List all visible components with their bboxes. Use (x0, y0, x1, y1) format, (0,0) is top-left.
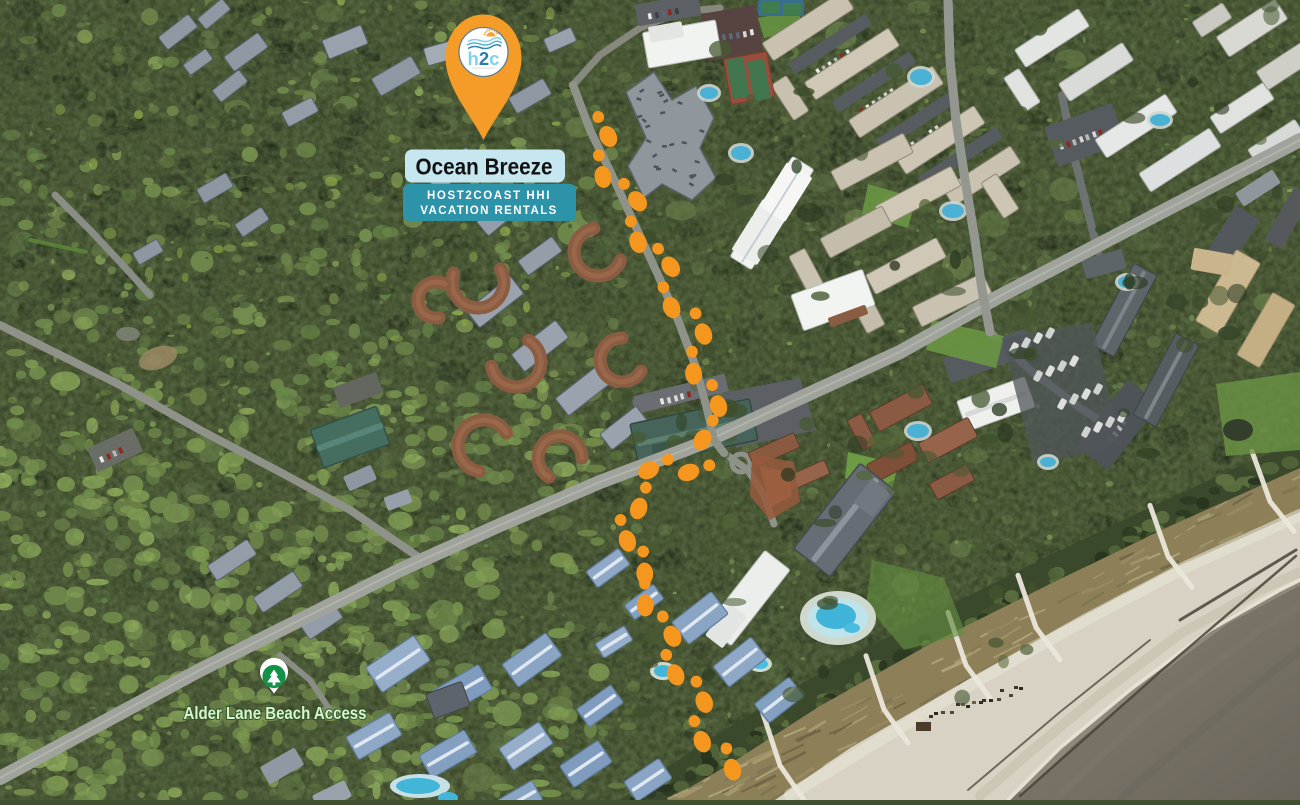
svg-text:HOST2COAST HHI: HOST2COAST HHI (427, 190, 551, 202)
svg-text:VACATION RENTALS: VACATION RENTALS (420, 205, 557, 217)
svg-text:h2c: h2c (468, 48, 500, 69)
svg-text:Ocean Breeze: Ocean Breeze (416, 154, 553, 180)
svg-text:Alder Lane Beach Access: Alder Lane Beach Access (184, 703, 367, 723)
